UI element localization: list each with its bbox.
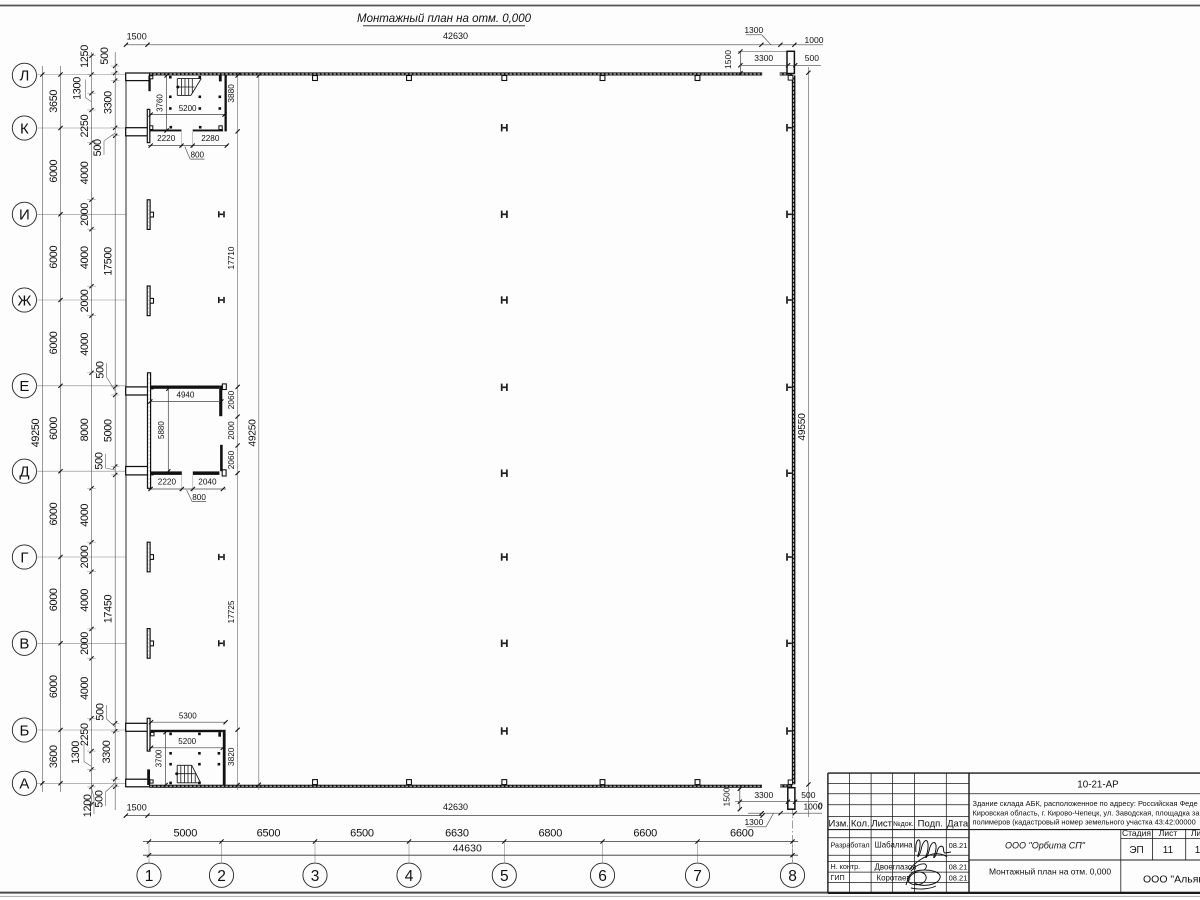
svg-text:6000: 6000 xyxy=(48,502,60,525)
svg-text:500: 500 xyxy=(801,790,815,800)
svg-text:ГИП: ГИП xyxy=(831,873,845,882)
svg-text:6000: 6000 xyxy=(48,331,60,354)
svg-text:1: 1 xyxy=(145,868,154,885)
svg-text:08.21: 08.21 xyxy=(949,874,968,883)
svg-text:5300: 5300 xyxy=(179,711,197,720)
svg-text:6000: 6000 xyxy=(48,675,60,698)
svg-text:Е: Е xyxy=(19,378,29,395)
svg-text:6500: 6500 xyxy=(257,827,281,839)
svg-text:4: 4 xyxy=(405,868,414,885)
svg-text:4000: 4000 xyxy=(79,504,91,527)
svg-text:500: 500 xyxy=(92,139,104,156)
svg-text:08.21: 08.21 xyxy=(949,841,968,850)
svg-text:ЭП: ЭП xyxy=(1129,845,1143,856)
svg-text:500: 500 xyxy=(95,361,107,378)
svg-text:Б: Б xyxy=(19,722,29,739)
svg-text:Монтажный план на отм. 0,000: Монтажный план на отм. 0,000 xyxy=(357,13,532,25)
svg-text:8000: 8000 xyxy=(79,418,91,441)
svg-text:0: 0 xyxy=(818,802,823,811)
svg-text:6: 6 xyxy=(598,868,607,885)
svg-text:08.21: 08.21 xyxy=(949,863,968,872)
svg-text:5000: 5000 xyxy=(173,827,197,839)
svg-text:2: 2 xyxy=(217,868,226,885)
svg-text:17450: 17450 xyxy=(103,594,115,623)
svg-text:3300: 3300 xyxy=(754,53,773,63)
svg-text:Н. контр.: Н. контр. xyxy=(831,862,861,871)
svg-text:6630: 6630 xyxy=(445,827,469,839)
svg-text:500: 500 xyxy=(99,47,111,64)
svg-text:7: 7 xyxy=(693,868,702,885)
svg-text:3300: 3300 xyxy=(103,91,115,114)
svg-text:49250: 49250 xyxy=(30,418,42,447)
svg-text:ООО "Альянспроект": ООО "Альянспроект" xyxy=(1143,874,1200,886)
svg-text:3: 3 xyxy=(311,868,320,885)
svg-text:К: К xyxy=(20,120,29,137)
svg-text:3700: 3700 xyxy=(155,749,164,767)
svg-text:В: В xyxy=(19,636,29,653)
svg-text:Стадия: Стадия xyxy=(1122,828,1151,838)
svg-text:11: 11 xyxy=(1163,845,1174,856)
svg-text:6000: 6000 xyxy=(48,245,60,268)
svg-text:Шабалина: Шабалина xyxy=(875,841,914,850)
svg-text:1: 1 xyxy=(1195,845,1200,856)
svg-text:Коротаев: Коротаев xyxy=(877,873,911,882)
svg-text:5000: 5000 xyxy=(103,419,115,442)
svg-text:1500: 1500 xyxy=(722,787,732,806)
svg-text:А: А xyxy=(19,776,29,793)
svg-text:Дата: Дата xyxy=(947,818,969,829)
svg-text:500: 500 xyxy=(94,452,106,469)
svg-text:1500: 1500 xyxy=(723,50,733,69)
svg-text:Г: Г xyxy=(20,549,28,566)
svg-text:1000: 1000 xyxy=(805,35,824,45)
svg-text:Л: Л xyxy=(19,68,29,85)
svg-text:2220: 2220 xyxy=(157,134,176,143)
svg-text:Ж: Ж xyxy=(17,292,31,309)
svg-text:2000: 2000 xyxy=(79,545,91,568)
svg-text:1300: 1300 xyxy=(70,741,82,764)
svg-text:800: 800 xyxy=(190,150,204,159)
svg-text:1300: 1300 xyxy=(744,817,763,827)
svg-text:2060: 2060 xyxy=(226,450,236,469)
svg-text:1250: 1250 xyxy=(79,45,91,68)
svg-text:5200: 5200 xyxy=(179,104,197,113)
svg-text:6800: 6800 xyxy=(538,827,562,839)
svg-text:№док.: №док. xyxy=(893,821,914,828)
svg-text:Подп.: Подп. xyxy=(918,818,943,829)
svg-text:1500: 1500 xyxy=(127,32,147,42)
svg-text:Лист: Лист xyxy=(871,819,892,830)
svg-text:8: 8 xyxy=(788,868,797,885)
svg-text:44630: 44630 xyxy=(453,843,482,855)
svg-text:6000: 6000 xyxy=(48,588,60,611)
svg-text:5: 5 xyxy=(500,868,509,885)
svg-text:Ли: Ли xyxy=(1191,828,1200,838)
svg-text:Кол.: Кол. xyxy=(851,818,870,829)
svg-text:Кировская область, г. Кирово-Ч: Кировская область, г. Кирово-Чепецк, ул.… xyxy=(973,808,1200,817)
svg-text:17725: 17725 xyxy=(226,600,236,623)
svg-text:Д: Д xyxy=(19,464,29,481)
svg-text:2000: 2000 xyxy=(226,421,236,440)
svg-text:И: И xyxy=(19,207,30,224)
svg-text:2280: 2280 xyxy=(201,134,220,143)
svg-text:3300: 3300 xyxy=(754,790,773,800)
svg-text:3300: 3300 xyxy=(101,740,113,763)
svg-text:6500: 6500 xyxy=(350,827,374,839)
svg-text:Монтажный план на отм. 0,000: Монтажный план на отм. 0,000 xyxy=(989,867,1111,877)
svg-text:Разработал: Разработал xyxy=(831,840,870,849)
svg-text:10-21-АР: 10-21-АР xyxy=(1077,780,1119,791)
svg-text:49250: 49250 xyxy=(247,419,258,447)
svg-text:2000: 2000 xyxy=(79,289,91,312)
svg-text:4000: 4000 xyxy=(79,677,91,700)
svg-text:6600: 6600 xyxy=(730,827,754,839)
svg-text:4000: 4000 xyxy=(79,589,91,612)
svg-text:4000: 4000 xyxy=(79,161,91,184)
svg-text:500: 500 xyxy=(94,790,106,807)
svg-text:2040: 2040 xyxy=(198,477,217,486)
svg-text:Двоеглазов: Двоеглазов xyxy=(875,862,917,871)
svg-text:3880: 3880 xyxy=(226,84,236,103)
svg-text:5880: 5880 xyxy=(157,421,166,439)
svg-text:1500: 1500 xyxy=(127,802,147,812)
svg-text:5200: 5200 xyxy=(178,737,196,746)
svg-text:4000: 4000 xyxy=(79,246,91,269)
svg-text:4940: 4940 xyxy=(177,390,195,399)
svg-text:1300: 1300 xyxy=(71,77,83,100)
svg-text:500: 500 xyxy=(95,703,107,720)
svg-text:3760: 3760 xyxy=(156,94,165,112)
svg-text:6000: 6000 xyxy=(48,159,60,182)
svg-text:17710: 17710 xyxy=(226,246,236,269)
svg-text:49550: 49550 xyxy=(797,413,808,441)
svg-text:6600: 6600 xyxy=(633,827,657,839)
svg-text:2220: 2220 xyxy=(158,477,177,486)
svg-text:1300: 1300 xyxy=(744,25,763,35)
svg-text:42630: 42630 xyxy=(443,802,468,812)
svg-text:2060: 2060 xyxy=(226,390,236,409)
svg-text:1200: 1200 xyxy=(82,794,94,817)
svg-text:полимеров (кадастровый номер з: полимеров (кадастровый номер земельного … xyxy=(973,818,1196,827)
svg-text:Лист: Лист xyxy=(1159,828,1178,838)
svg-text:Изм.: Изм. xyxy=(829,818,849,829)
svg-text:2000: 2000 xyxy=(79,203,91,226)
svg-text:2000: 2000 xyxy=(79,632,91,655)
svg-text:Здание склада АБК, расположенн: Здание склада АБК, расположенное по адре… xyxy=(973,799,1198,808)
svg-text:3600: 3600 xyxy=(48,745,60,768)
svg-text:800: 800 xyxy=(192,493,206,502)
svg-text:3820: 3820 xyxy=(226,747,236,766)
svg-text:500: 500 xyxy=(805,53,819,63)
svg-text:ООО "Орбита СП": ООО "Орбита СП" xyxy=(1005,840,1086,850)
svg-text:17500: 17500 xyxy=(103,247,115,276)
svg-text:42630: 42630 xyxy=(443,31,468,41)
svg-text:2250: 2250 xyxy=(79,114,91,137)
svg-text:6000: 6000 xyxy=(48,417,60,440)
svg-text:3650: 3650 xyxy=(48,90,60,113)
svg-text:4000: 4000 xyxy=(79,333,91,356)
